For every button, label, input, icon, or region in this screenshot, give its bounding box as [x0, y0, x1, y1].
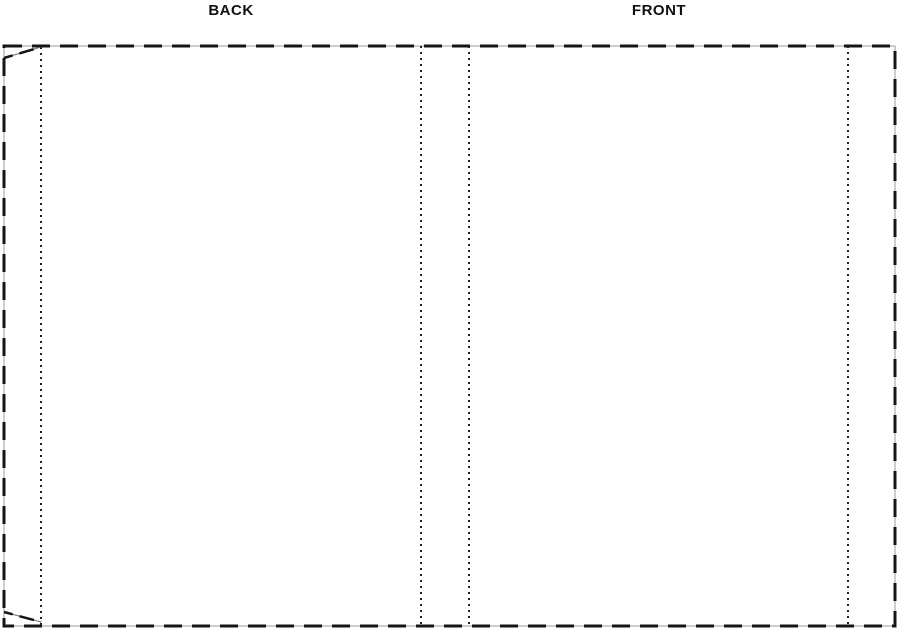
cut-line-dashed-border — [4, 46, 895, 626]
template-outline-drawing — [0, 0, 900, 631]
cover-template-canvas: BACK FRONT — [0, 0, 900, 631]
left-flap-bottom-taper-dashes — [4, 612, 41, 622]
cut-line-guide-rect — [4, 46, 895, 626]
